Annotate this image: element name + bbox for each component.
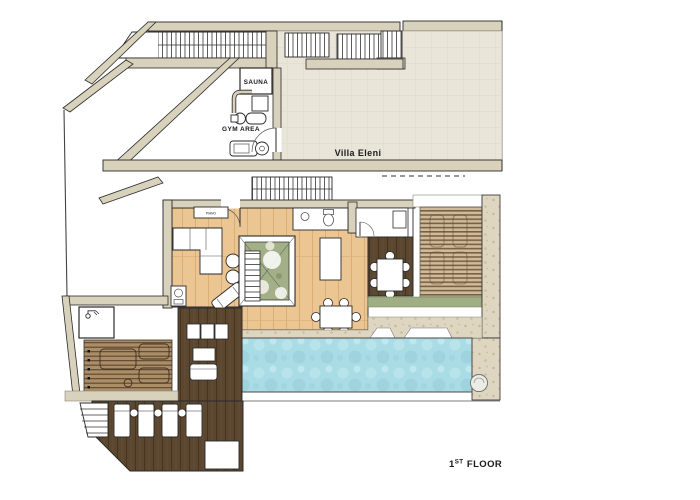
vestibule [356,208,408,237]
floor-plan-page: SAUNA GYM AREA Villa Eleni [0,0,700,500]
grass-strip [368,297,482,307]
pool-ladder-icon [471,375,488,392]
washbasin [171,286,186,306]
gym-treadmill [230,141,269,156]
side-table [154,409,162,417]
sofa-cushion [187,324,200,339]
side-table [130,409,138,417]
sofa-cushion [215,324,228,339]
gym-exercise-bike [231,113,266,124]
pouf [226,254,240,268]
covered-dining-room [368,237,413,299]
piano-label: PIANO [206,212,216,216]
toilet-icon [324,210,334,227]
terrace-steps [381,31,402,58]
sauna-label: SAUNA [244,79,268,86]
gym-area-label: GYM AREA [222,126,260,133]
paving-step [404,328,452,338]
pouf [226,270,240,284]
sun-deck [80,401,243,471]
atrium-courtyard [239,236,295,306]
sauna-side-wall [266,31,277,68]
coffee-table [193,348,215,361]
stone-wall-right [482,195,500,338]
deck-stairs [80,403,108,437]
sauna-room: SAUNA [234,68,272,113]
mid-stair-run [252,177,332,201]
pergola-slat-deck [413,195,482,297]
sofa-cushion [201,324,214,339]
floor-plan: SAUNA GYM AREA Villa Eleni [0,0,700,500]
kitchen-wc-nook [293,208,348,230]
plant [263,251,281,269]
plant [275,287,287,299]
kitchen-island [320,238,341,280]
lower-path [65,391,178,401]
lounge-slat-deck [84,340,172,394]
armchair [190,364,217,380]
pool [242,338,472,392]
floor-title: 1STFLOOR [449,459,502,471]
atrium-stair [245,251,260,301]
deck-platform [205,441,239,469]
piano: PIANO [194,207,228,218]
wood-walkway [178,308,242,401]
side-table [178,409,186,417]
villa-title: Villa Eleni [335,148,382,158]
